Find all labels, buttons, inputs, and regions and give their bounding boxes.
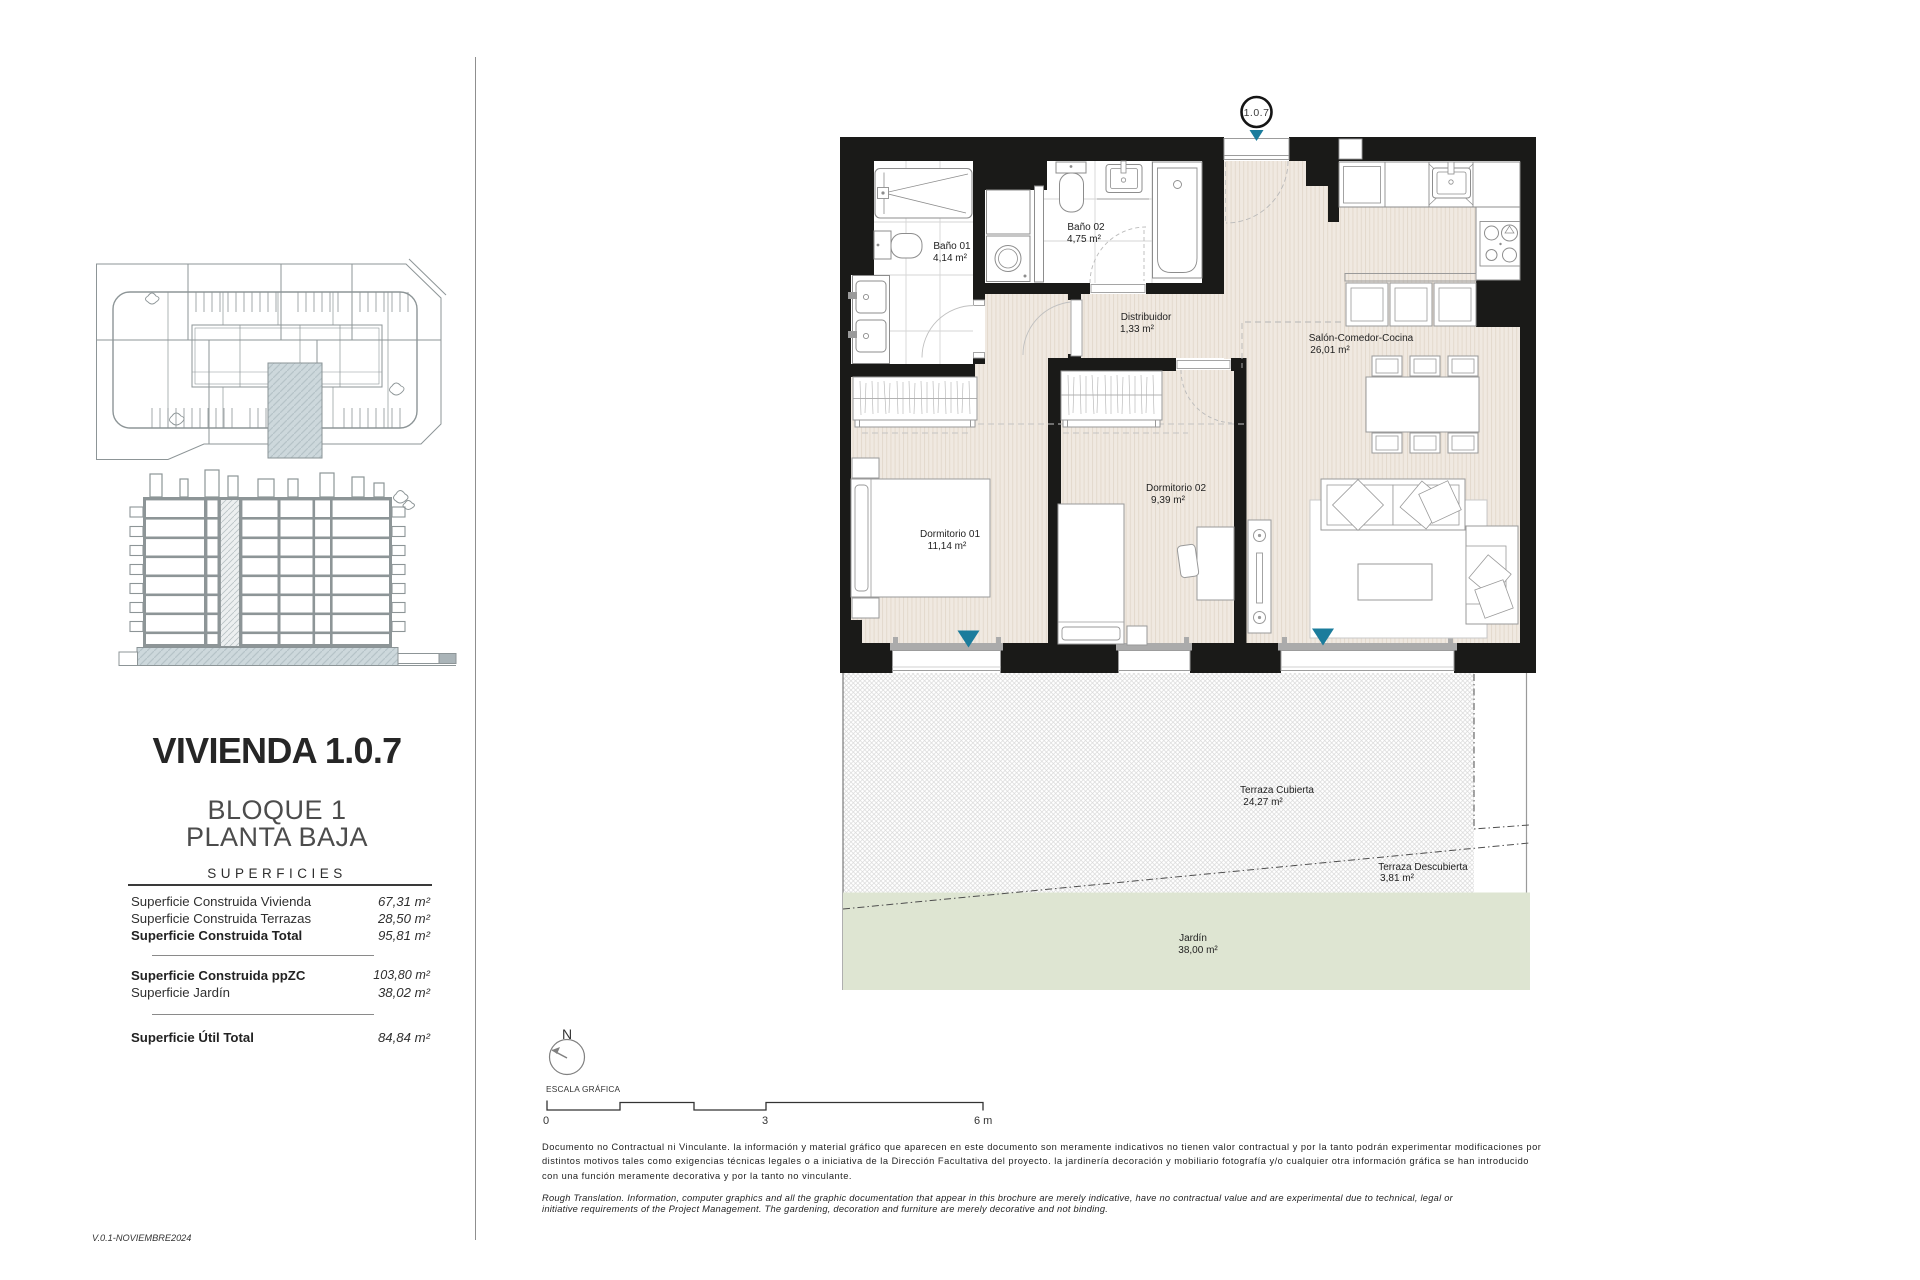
svg-text:ESCALA GRÁFICA: ESCALA GRÁFICA <box>546 1084 621 1094</box>
svg-text:11,14 m²: 11,14 m² <box>928 541 967 552</box>
svg-text:Distribuidor: Distribuidor <box>1121 312 1172 323</box>
svg-text:Dormitorio 02: Dormitorio 02 <box>1146 483 1206 494</box>
svg-text:Terraza Descubierta: Terraza Descubierta <box>1378 862 1468 873</box>
svg-text:24,27 m²: 24,27 m² <box>1243 797 1283 808</box>
svg-text:Jardín: Jardín <box>1179 933 1207 944</box>
svg-text:3,81 m²: 3,81 m² <box>1380 873 1415 884</box>
svg-text:38,00 m²: 38,00 m² <box>1178 945 1218 956</box>
svg-text:6 m: 6 m <box>974 1115 992 1127</box>
svg-text:0: 0 <box>543 1115 549 1127</box>
svg-text:Baño 01: Baño 01 <box>933 241 971 252</box>
svg-text:26,01 m²: 26,01 m² <box>1310 345 1350 356</box>
svg-text:1,33 m²: 1,33 m² <box>1120 324 1155 335</box>
svg-text:3: 3 <box>762 1115 768 1127</box>
svg-text:9,39 m²: 9,39 m² <box>1151 495 1186 506</box>
svg-text:Terraza Cubierta: Terraza Cubierta <box>1240 785 1314 796</box>
svg-text:Baño 02: Baño 02 <box>1067 222 1105 233</box>
svg-text:1.0.7: 1.0.7 <box>1244 107 1270 119</box>
svg-text:Dormitorio 01: Dormitorio 01 <box>920 529 980 540</box>
svg-text:4,75 m²: 4,75 m² <box>1067 234 1102 245</box>
svg-text:Salón-Comedor-Cocina: Salón-Comedor-Cocina <box>1309 333 1414 344</box>
svg-text:4,14 m²: 4,14 m² <box>933 253 968 264</box>
